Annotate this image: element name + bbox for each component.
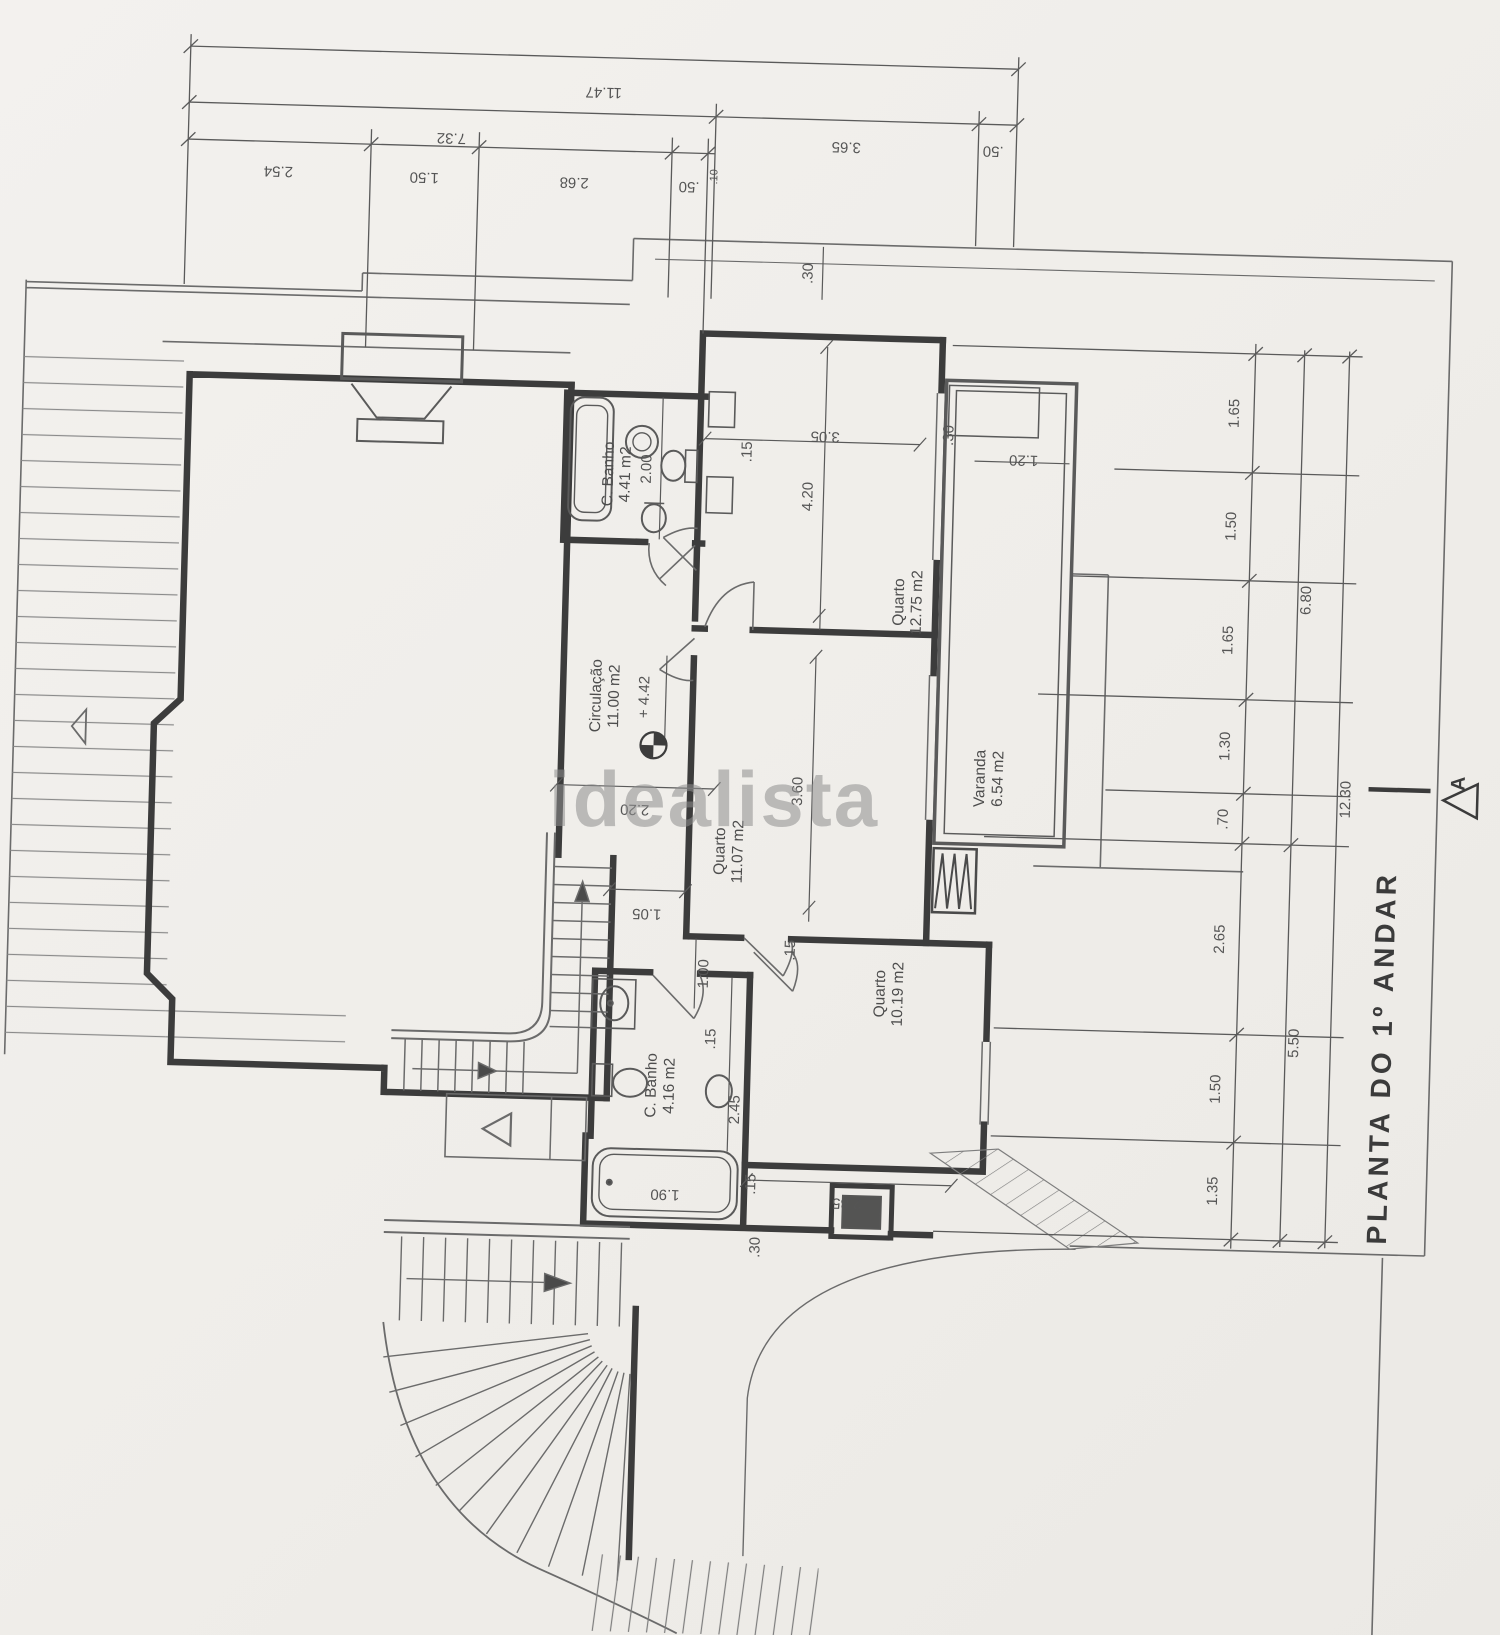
level-marker: + 4.42	[634, 655, 669, 759]
plan-title: PLANTA DO 1º ANDAR	[1361, 871, 1402, 1245]
dim-interior: 1.90	[650, 1185, 680, 1203]
landing-direction-arrow	[482, 1113, 511, 1146]
room-area-varanda: 6.54 m2	[989, 751, 1008, 807]
dim-interior: 1.05	[632, 905, 662, 923]
bidet-icon	[641, 504, 666, 533]
dim-interior: .30	[746, 1237, 764, 1258]
dim-interior: 2.00	[638, 454, 656, 484]
level-value: + 4.42	[635, 676, 653, 719]
exterior-stair-arrow	[544, 1273, 570, 1292]
dim-right-mid: 5.50	[1285, 1028, 1303, 1058]
dim-right-outer: 12.30	[1337, 781, 1355, 819]
stairs-exterior	[373, 1220, 828, 1635]
dim-top: 3.65	[831, 138, 861, 156]
radiator	[932, 848, 977, 913]
room-area-circulacao: 11.00 m2	[605, 664, 624, 728]
dim-interior: 1.00	[695, 959, 713, 989]
room-area-quarto-1: 12.75 m2	[908, 570, 927, 635]
dim-right: 1.50	[1222, 511, 1240, 541]
dim-interior: 4.20	[799, 482, 817, 512]
roof-hatch-band	[928, 1147, 1141, 1251]
toilet-icon	[661, 450, 686, 481]
room-area-cbanho-lower: 4.16 m2	[660, 1058, 679, 1114]
dim-interior: .15	[702, 1028, 720, 1049]
room-label-circulacao: Circulação	[587, 659, 606, 733]
room-label-cbanho-lower: C. Banho	[642, 1053, 661, 1118]
top-dimension-chain: 11.47 7.32 3.65 .50 2.54 1.50 2.68 .50 .…	[176, 34, 1026, 365]
dim-interior: 3.05	[810, 428, 840, 446]
section-marker: A	[1368, 774, 1478, 818]
dim-top: 7.32	[437, 129, 467, 147]
dim-right: 1.35	[1204, 1176, 1222, 1206]
dim-top: .10	[708, 169, 720, 185]
floorplan-drawing: 11.47 7.32 3.65 .50 2.54 1.50 2.68 .50 .…	[0, 0, 1500, 1635]
room-label-quarto-3: Quarto	[871, 970, 889, 1018]
exterior-outline	[0, 222, 1452, 1635]
stairs-interior	[388, 828, 613, 1161]
sink-icon	[600, 986, 629, 1021]
section-label: A	[1448, 776, 1470, 791]
room-label-varanda: Varanda	[971, 749, 990, 807]
dim-interior: .15	[738, 441, 756, 462]
room-label-cbanho-upper: C. Banho	[599, 441, 618, 506]
scanned-floorplan-sheet: 11.47 7.32 3.65 .50 2.54 1.50 2.68 .50 .…	[0, 0, 1500, 1635]
dim-top-overall: 11.47	[585, 83, 622, 101]
dim-interior: 1.20	[1009, 451, 1039, 469]
dim-right: 2.65	[1211, 924, 1229, 954]
dim-interior: .30	[940, 425, 958, 446]
room-area-cbanho-upper: 4.41 m2	[616, 446, 635, 502]
dim-interior: .15	[742, 1174, 760, 1195]
dim-right: 1.50	[1207, 1074, 1225, 1104]
dim-interior: .30	[799, 263, 817, 284]
dim-right: 1.65	[1226, 399, 1244, 429]
dim-interior: .15	[782, 940, 800, 961]
idealista-watermark: idealista	[549, 755, 879, 843]
dim-right: 1.65	[1219, 625, 1237, 655]
room-area-quarto-3: 10.19 m2	[889, 962, 908, 1027]
dim-right: .70	[1214, 809, 1232, 830]
dim-right-mid: 6.80	[1297, 586, 1315, 616]
dim-top: .50	[983, 142, 1004, 160]
dim-top: 2.68	[559, 173, 589, 191]
dim-top: .50	[678, 178, 699, 196]
room-label-quarto-1: Quarto	[890, 578, 908, 626]
dim-right: 1.30	[1216, 731, 1234, 761]
stair-up-arrow	[575, 881, 590, 901]
dim-top: 1.50	[409, 168, 439, 186]
dim-interior: 2.45	[726, 1095, 744, 1125]
stair-turn-arrow	[478, 1063, 496, 1079]
dim-top: 2.54	[264, 162, 294, 180]
dim-interior: 2.85	[832, 1194, 862, 1212]
